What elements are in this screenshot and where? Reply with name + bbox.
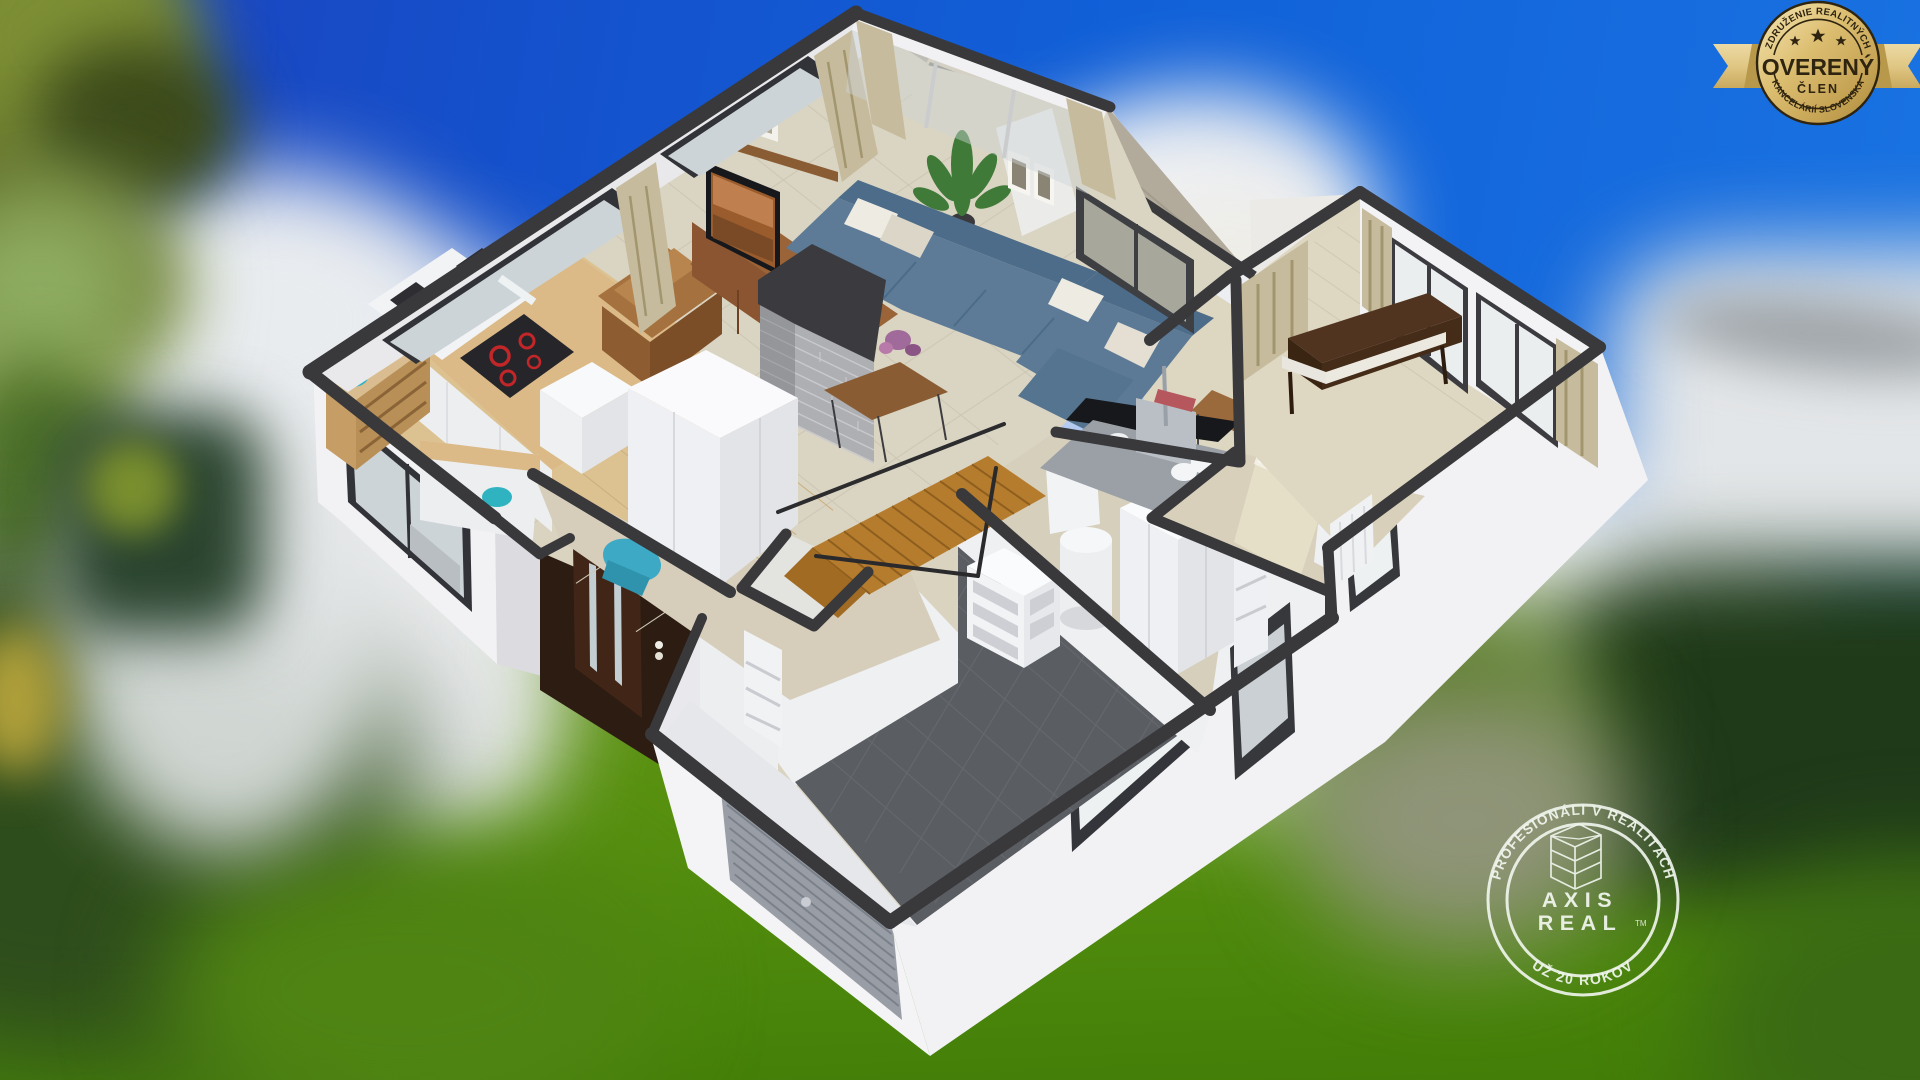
svg-text:ČLEN: ČLEN <box>1797 81 1839 96</box>
svg-text:AXIS: AXIS <box>1542 888 1618 912</box>
svg-text:REAL: REAL <box>1538 911 1623 935</box>
svg-text:TM: TM <box>1635 919 1647 928</box>
svg-text:OVERENÝ: OVERENÝ <box>1762 53 1874 80</box>
svg-text:UŽ 20 ROKOV: UŽ 20 ROKOV <box>1530 957 1637 988</box>
